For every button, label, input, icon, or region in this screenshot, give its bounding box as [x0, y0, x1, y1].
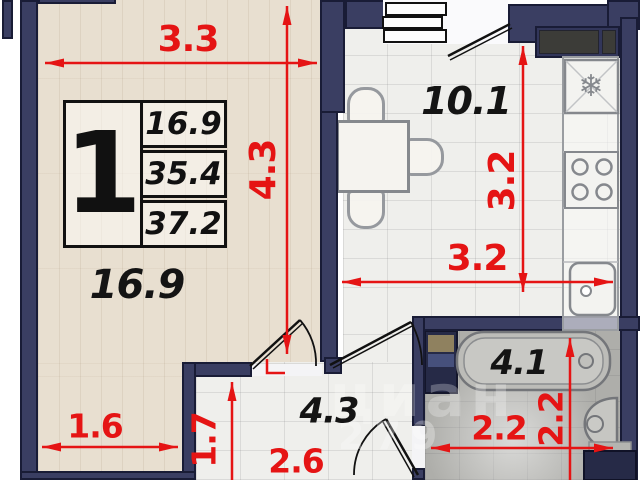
- legend-area-row-total: 37.2: [140, 200, 227, 248]
- dim-hall-height: 1.7: [188, 412, 221, 467]
- living-room-door-swing: [250, 320, 316, 369]
- legend-area-row-living: 16.9: [140, 100, 227, 148]
- dim-living-niche-width: 1.6: [67, 410, 122, 443]
- flat-number: 1: [63, 100, 143, 248]
- balcony-door-swing: [448, 24, 512, 60]
- stove: [565, 152, 618, 208]
- dim-kitchen-width: 3.2: [447, 241, 508, 277]
- dim-living-width: 3.3: [158, 22, 219, 58]
- dim-bath-width: 2.2: [471, 412, 526, 445]
- living-room-area-label: 16.9: [90, 265, 185, 305]
- kitchen-door-swing: [330, 322, 422, 368]
- floor-plan: циан 279 ❄ 16.9 10.1 4.3 4.1 3.3 4.3 3.2…: [0, 0, 640, 480]
- hallway-area-label: 4.3: [299, 395, 358, 430]
- dim-hall-width: 2.6: [268, 445, 323, 478]
- dim-bath-height: 2.2: [535, 391, 568, 446]
- fridge-snowflake-icon: ❄: [578, 72, 603, 102]
- bathroom-door-swing: [354, 419, 418, 477]
- dim-living-height: 4.3: [246, 140, 282, 201]
- dim-kitchen-height: 3.2: [485, 151, 521, 212]
- kitchen-sink: [570, 263, 615, 315]
- legend-box: 1 16.9 35.4 37.2: [63, 100, 227, 248]
- legend-area-row-livingspace: 35.4: [140, 150, 227, 198]
- bathroom-area-label: 4.1: [490, 346, 547, 380]
- kitchen-area-label: 10.1: [421, 82, 511, 120]
